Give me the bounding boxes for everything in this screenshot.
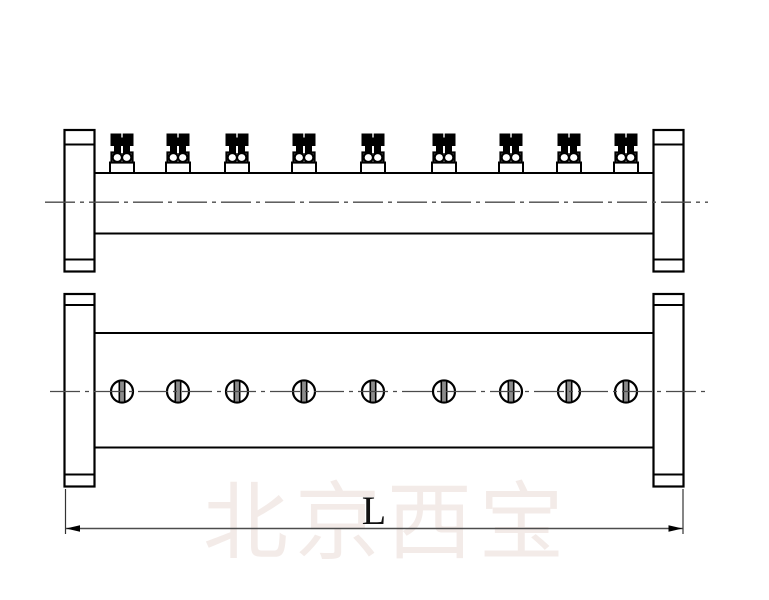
valve-fitting: [361, 134, 385, 174]
valve-nut-facet-left: [228, 153, 237, 162]
valve-base: [361, 163, 385, 174]
valve-base: [499, 163, 523, 174]
valve-nut-facet-right: [511, 153, 520, 162]
valve-nut-facet-right: [569, 153, 578, 162]
front-view: [50, 294, 710, 487]
valve-fitting: [499, 134, 523, 174]
valve-fitting: [110, 134, 134, 174]
valve-nut-facet-right: [178, 153, 187, 162]
valve-nut-facet-right: [122, 153, 131, 162]
valve-nut-facet-left: [113, 153, 122, 162]
valve-nut-facet-left: [295, 153, 304, 162]
valve-nut-facet-right: [373, 153, 382, 162]
dimension-annotation: L: [66, 488, 684, 534]
dimension-label: L: [362, 488, 386, 533]
valve-base: [110, 163, 134, 174]
valve-nut-facet-left: [560, 153, 569, 162]
valve-nut-facet-left: [435, 153, 444, 162]
top-view-right-flange: [654, 130, 684, 272]
valve-nut-facet-left: [617, 153, 626, 162]
top-view: [45, 130, 708, 272]
valve-nut-facet-left: [502, 153, 511, 162]
valve-nut-facet-left: [169, 153, 178, 162]
valve-fitting: [225, 134, 249, 174]
valve-base: [432, 163, 456, 174]
dimension-arrowhead-left: [66, 525, 80, 531]
valve-fitting: [166, 134, 190, 174]
valve-fittings-row: [110, 134, 638, 174]
hole-slot-fill: [441, 382, 446, 402]
valve-base: [292, 163, 316, 174]
valve-fitting: [432, 134, 456, 174]
valve-base: [614, 163, 638, 174]
valve-nut-facet-left: [364, 153, 373, 162]
front-view-right-flange: [654, 294, 684, 487]
valve-nut-facet-right: [304, 153, 313, 162]
valve-nut-facet-right: [237, 153, 246, 162]
valve-fitting: [557, 134, 581, 174]
watermark-text: 北京西宝: [203, 476, 571, 571]
valve-base: [225, 163, 249, 174]
valve-base: [557, 163, 581, 174]
dimension-arrowhead-right: [669, 525, 683, 531]
front-view-left-flange: [65, 294, 95, 487]
technical-drawing-canvas: 北京西宝: [0, 0, 769, 600]
valve-fitting: [292, 134, 316, 174]
valve-nut-facet-right: [444, 153, 453, 162]
valve-base: [166, 163, 190, 174]
valve-fitting: [614, 134, 638, 174]
valve-nut-facet-right: [626, 153, 635, 162]
top-view-left-flange: [65, 130, 95, 272]
